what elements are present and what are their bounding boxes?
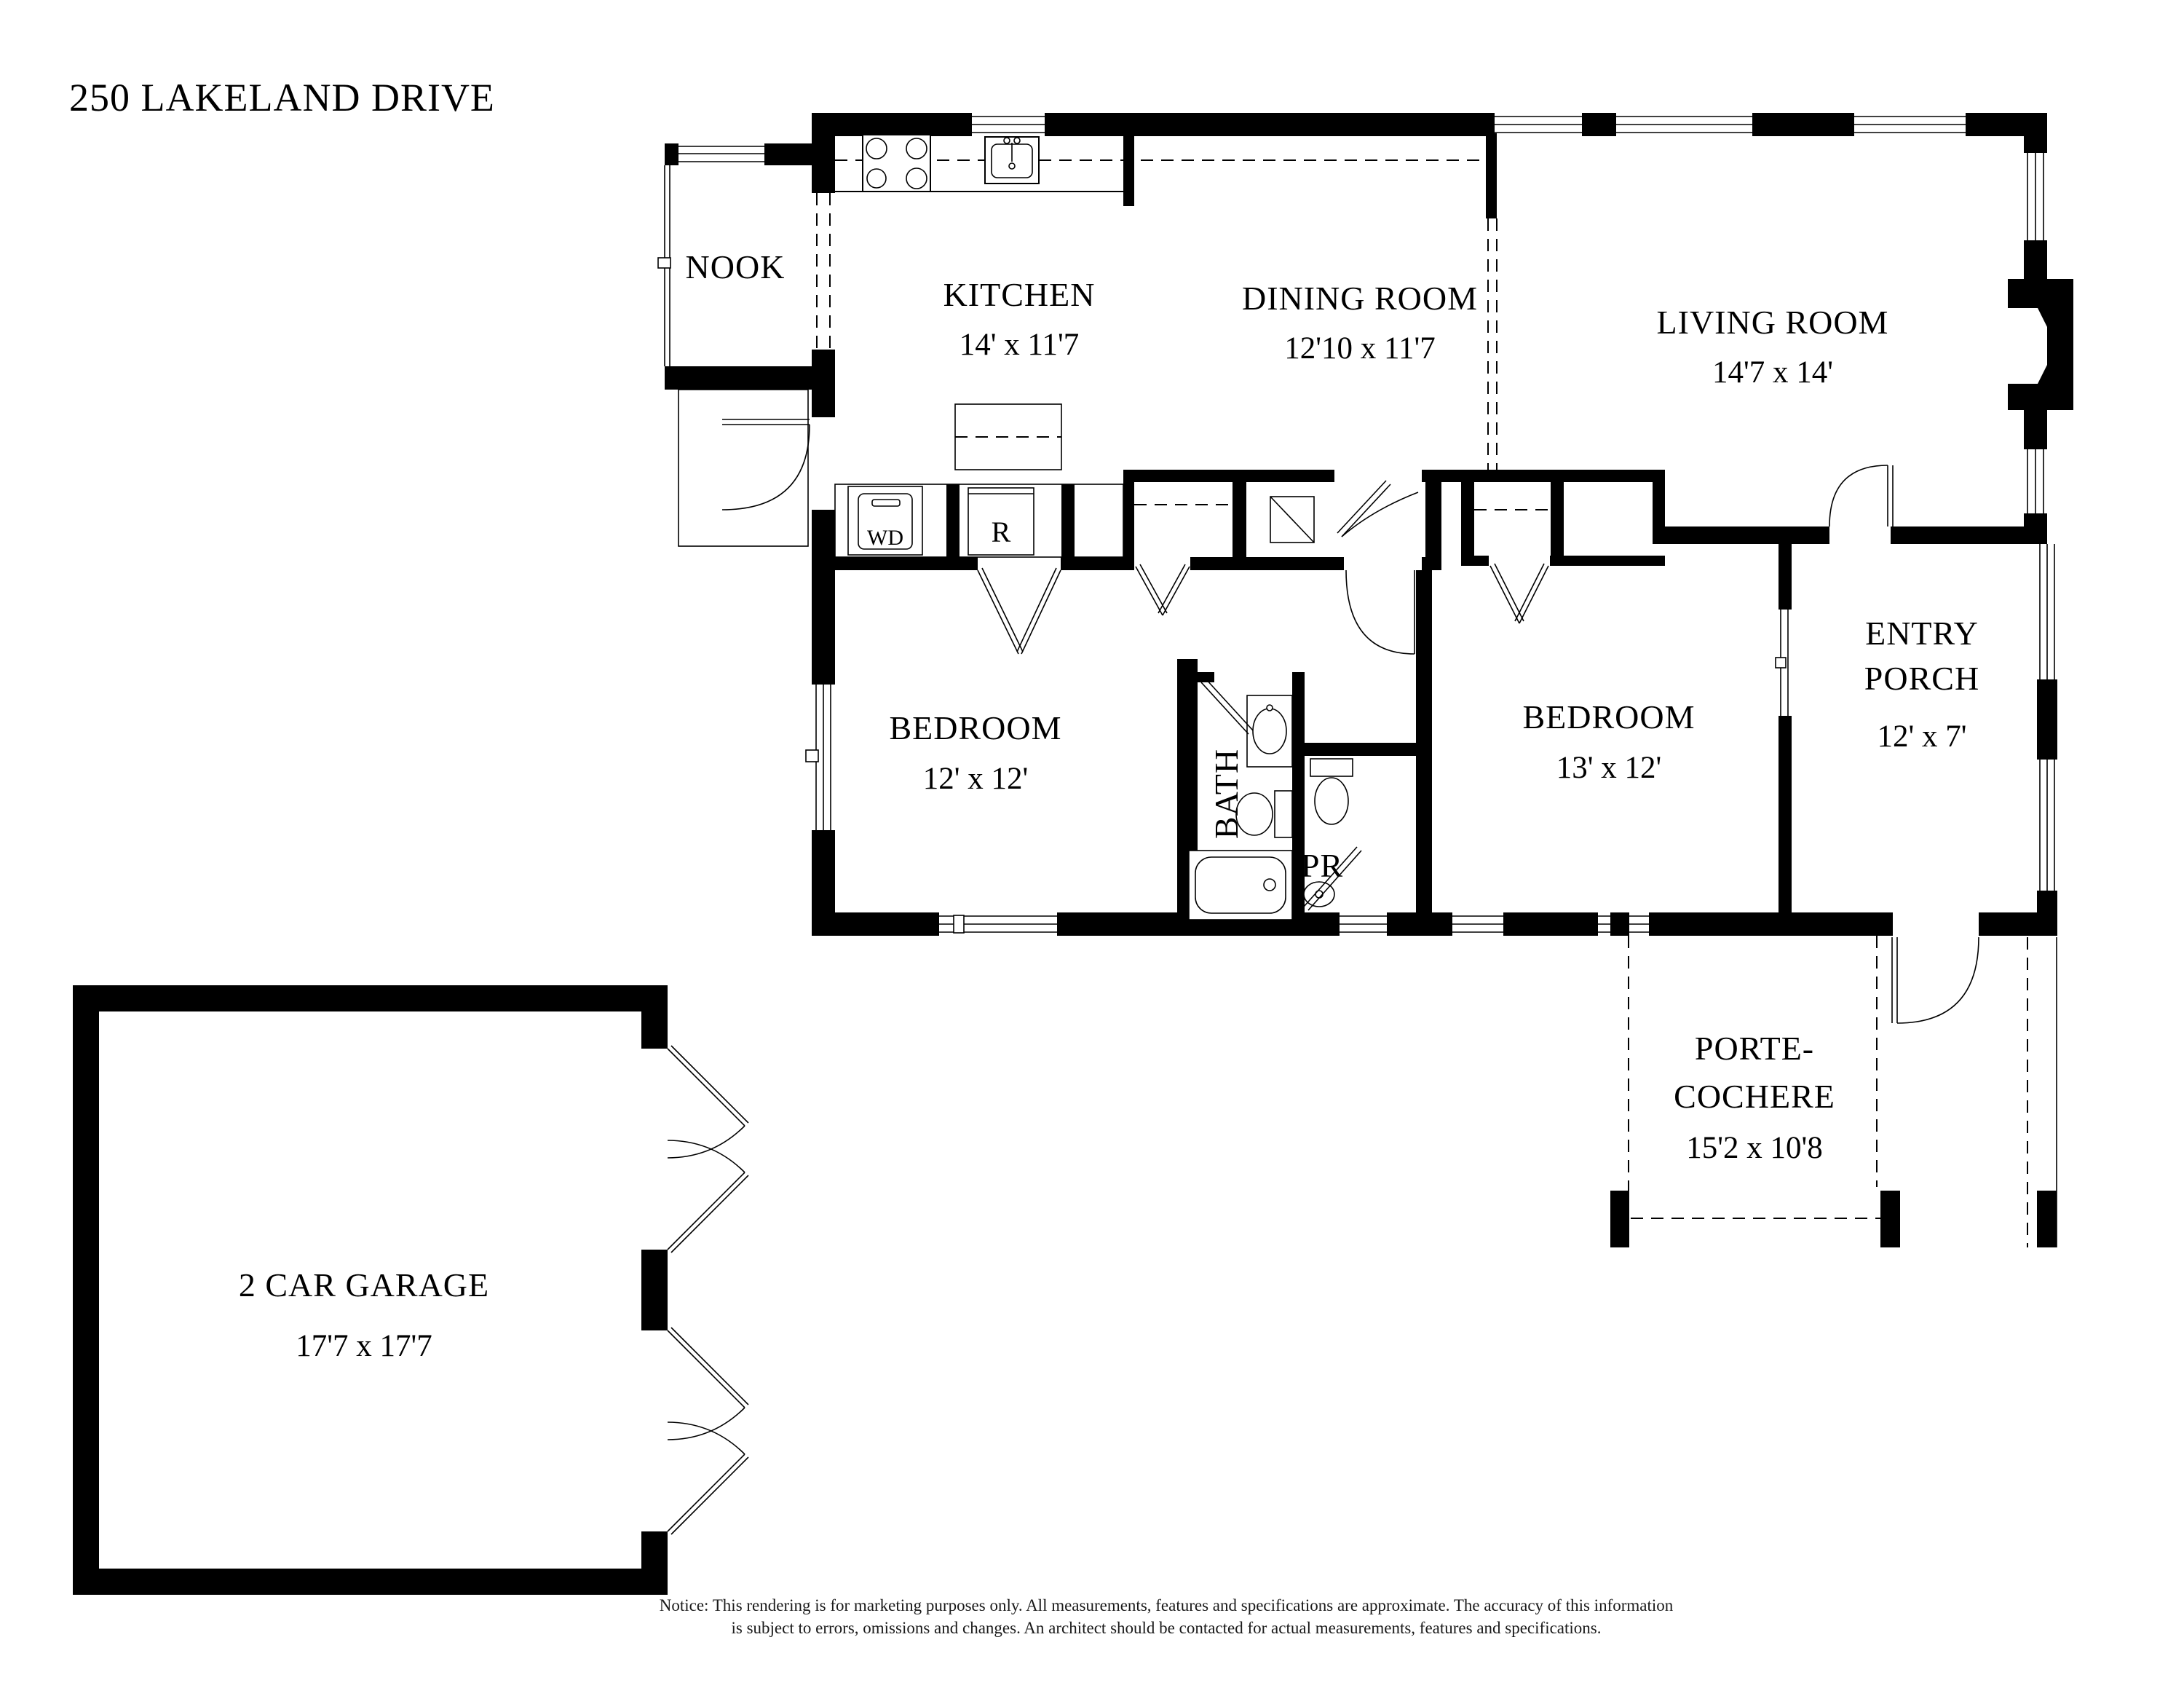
fireplace-icon	[2008, 279, 2073, 410]
window-porch-right-2	[2040, 760, 2054, 891]
label-porte-cochere-1: PORTE-	[1695, 1030, 1814, 1067]
label-nook: NOOK	[686, 248, 786, 285]
notice-line-2: is subject to errors, omissions and chan…	[732, 1619, 1602, 1637]
label-entry-porch-dims: 12' x 7'	[1878, 719, 1967, 754]
porch-door	[1892, 937, 1979, 1023]
hall-closet-door	[1337, 481, 1418, 537]
label-kitchen: KITCHEN	[943, 276, 1096, 313]
back-door	[722, 419, 810, 510]
label-washer-dryer: WD	[867, 526, 903, 550]
page-title: 250 LAKELAND DRIVE	[69, 76, 495, 119]
label-dining: DINING ROOM	[1242, 280, 1478, 317]
bedroom1-door	[978, 568, 1061, 654]
label-entry-porch-1: ENTRY	[1865, 615, 1979, 652]
label-powder: PR	[1301, 847, 1343, 884]
window-living-top-2	[1854, 117, 1966, 133]
room-labels: 250 LAKELAND DRIVE NOOK KITCHEN 14' x 11…	[69, 76, 1979, 1363]
porte-post-right	[2037, 1191, 2057, 1247]
window-dining	[1495, 117, 1582, 133]
window-porch-right-1	[2040, 544, 2054, 679]
window-kitchen-sink	[972, 117, 1045, 133]
notice-line-1: Notice: This rendering is for marketing …	[660, 1596, 1674, 1614]
label-entry-porch-2: PORCH	[1864, 660, 1979, 697]
label-garage-dims: 17'7 x 17'7	[296, 1329, 432, 1363]
powder-toilet-icon	[1310, 759, 1353, 824]
window-powder-bottom	[1340, 916, 1387, 932]
notice-text: Notice: This rendering is for marketing …	[660, 1596, 1674, 1637]
window-porch-left	[1776, 610, 1788, 716]
pantry-utility	[1270, 497, 1314, 543]
front-door	[1829, 465, 1893, 526]
label-living-dims: 14'7 x 14'	[1712, 355, 1833, 390]
powder-room-fixtures	[1304, 759, 1361, 910]
floor-plan-page: 250 LAKELAND DRIVE NOOK KITCHEN 14' x 11…	[0, 0, 2184, 1688]
porte-post-topleft	[1610, 912, 1629, 936]
label-bedroom1-dims: 12' x 12'	[923, 762, 1029, 796]
label-bath: BATH	[1208, 749, 1245, 839]
pantry-bifold-door	[1136, 564, 1190, 615]
porte-post-bottomright	[1880, 1191, 1900, 1247]
garage-doors	[668, 1046, 748, 1534]
label-porte-cochere-2: COCHERE	[1674, 1078, 1835, 1115]
window-bedroom1-left	[806, 685, 831, 830]
label-bedroom1: BEDROOM	[889, 709, 1061, 746]
label-kitchen-dims: 14' x 11'7	[960, 328, 1079, 362]
label-dining-dims: 12'10 x 11'7	[1284, 331, 1435, 366]
nook-structure	[658, 143, 826, 546]
label-porte-cochere-dims: 15'2 x 10'8	[1686, 1131, 1823, 1165]
bedroom2-closet-door	[1490, 564, 1548, 623]
kitchen-peninsula	[955, 404, 1061, 470]
window-living-right-2	[2027, 449, 2043, 513]
window-sill-mark	[658, 258, 670, 268]
back-landing	[678, 390, 808, 546]
label-garage: 2 CAR GARAGE	[239, 1266, 489, 1304]
window-bedroom2-bottom-1	[1452, 916, 1503, 932]
bath-vanity-sink-icon	[1247, 695, 1292, 767]
porte-post-bottomleft	[1610, 1191, 1629, 1247]
kitchen-sink-icon	[985, 137, 1039, 184]
label-refrigerator: R	[992, 516, 1011, 548]
stove-icon	[863, 135, 930, 192]
label-bedroom2-dims: 13' x 12'	[1556, 751, 1662, 785]
label-bedroom2: BEDROOM	[1522, 698, 1695, 735]
window-living-right-1	[2027, 153, 2043, 240]
label-living: LIVING ROOM	[1657, 304, 1889, 341]
window-living-top-1	[1616, 117, 1752, 133]
bath-door	[1201, 679, 1253, 734]
bathtub-icon	[1189, 851, 1292, 920]
floor-plan-svg: 250 LAKELAND DRIVE NOOK KITCHEN 14' x 11…	[0, 0, 2184, 1688]
bedroom2-door	[1346, 570, 1420, 654]
